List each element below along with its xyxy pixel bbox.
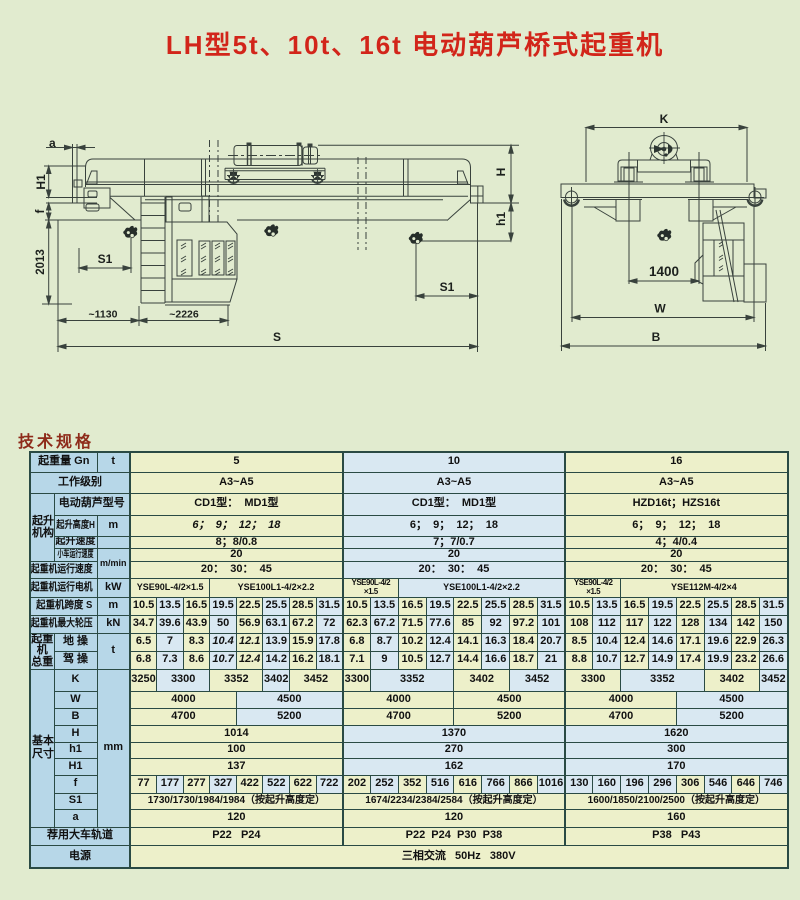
svg-text:W: W — [654, 302, 666, 316]
svg-text:f: f — [33, 209, 47, 214]
svg-text:B: B — [652, 330, 661, 344]
svg-text:K: K — [660, 112, 669, 126]
svg-text:~2226: ~2226 — [169, 309, 199, 321]
svg-text:h1: h1 — [494, 212, 508, 226]
svg-text:H: H — [494, 168, 508, 177]
svg-text:1400: 1400 — [649, 264, 679, 279]
svg-text:2013: 2013 — [35, 249, 47, 275]
svg-text:S1: S1 — [98, 252, 113, 266]
svg-text:~1130: ~1130 — [89, 309, 118, 321]
svg-text:H1: H1 — [34, 174, 48, 190]
svg-text:a: a — [49, 136, 56, 150]
svg-text:S: S — [273, 330, 281, 344]
svg-text:S1: S1 — [440, 280, 455, 294]
